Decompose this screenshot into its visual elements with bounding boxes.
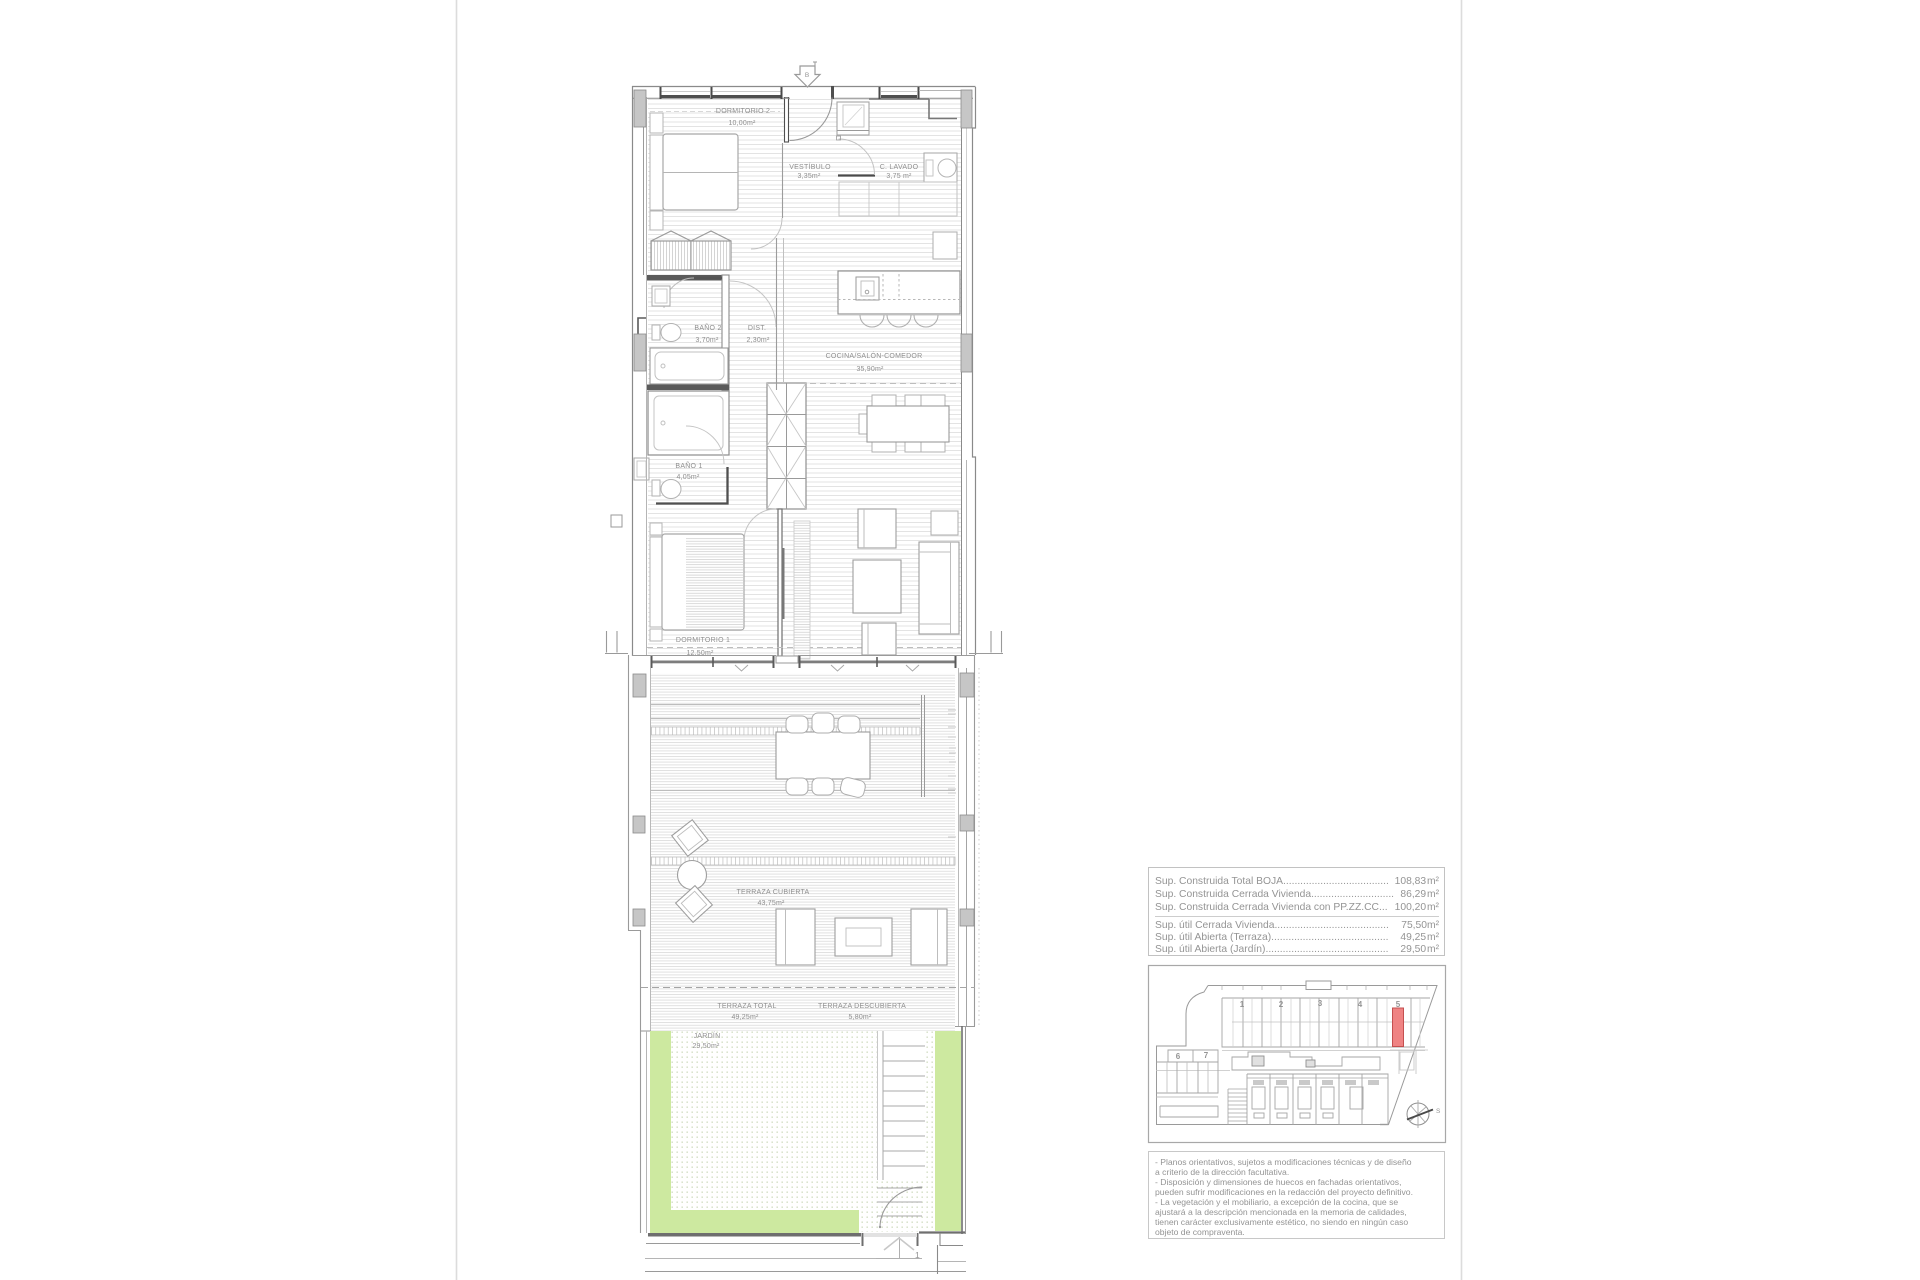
- svg-text:VESTÍBULO: VESTÍBULO: [789, 162, 831, 171]
- svg-text:objeto de compraventa.: objeto de compraventa.: [1155, 1227, 1245, 1237]
- svg-text:Sup. útil Cerrada Vivienda....: Sup. útil Cerrada Vivienda..............…: [1155, 920, 1389, 931]
- svg-text:C. LAVADO: C. LAVADO: [880, 164, 919, 171]
- svg-text:49,25m²: 49,25m²: [731, 1014, 759, 1021]
- svg-text:5,80m²: 5,80m²: [849, 1014, 872, 1021]
- svg-text:3: 3: [1318, 999, 1323, 1008]
- svg-text:2,30m²: 2,30m²: [747, 337, 770, 344]
- svg-text:DORMITORIO 2: DORMITORIO 2: [716, 108, 770, 115]
- svg-text:86,29 m²: 86,29 m²: [1400, 889, 1439, 900]
- svg-text:108,83 m²: 108,83 m²: [1395, 876, 1440, 887]
- svg-text:TERRAZA CUBIERTA: TERRAZA CUBIERTA: [737, 889, 810, 896]
- svg-text:B: B: [805, 72, 809, 79]
- svg-text:Sup. Construida Cerrada Vivien: Sup. Construida Cerrada Vivienda........…: [1155, 889, 1394, 900]
- svg-text:Sup. Construida Total BOJA....: Sup. Construida Total BOJA..............…: [1155, 876, 1389, 887]
- svg-text:Sup. útil Abierta (Jardín)....: Sup. útil Abierta (Jardín)..............…: [1155, 944, 1388, 955]
- svg-text:29,50 m²: 29,50 m²: [1400, 944, 1439, 955]
- svg-text:COCINA/SALÓN-COMEDOR: COCINA/SALÓN-COMEDOR: [826, 351, 923, 360]
- svg-text:4,05m²: 4,05m²: [677, 474, 700, 481]
- svg-text:BAÑO 2: BAÑO 2: [694, 323, 721, 332]
- svg-text:- Planos orientativos, sujetos: - Planos orientativos, sujetos a modific…: [1155, 1157, 1412, 1167]
- svg-text:29,50m²: 29,50m²: [692, 1043, 720, 1050]
- svg-text:Sup. Construida Cerrada Vivien: Sup. Construida Cerrada Vivienda con PP.…: [1155, 902, 1388, 913]
- svg-text:2: 2: [1279, 1000, 1284, 1009]
- svg-text:10,00m²: 10,00m²: [728, 120, 756, 127]
- svg-text:BAÑO 1: BAÑO 1: [675, 461, 702, 470]
- svg-text:43,75m²: 43,75m²: [757, 900, 785, 907]
- svg-text:3,75 m²: 3,75 m²: [886, 173, 912, 180]
- svg-text:pueden sufrir modificaciones e: pueden sufrir modificaciones en la redac…: [1155, 1187, 1413, 1197]
- svg-text:- La vegetación y el mobiliari: - La vegetación y el mobiliario, a excep…: [1155, 1197, 1398, 1207]
- svg-text:49,25 m²: 49,25 m²: [1400, 932, 1439, 943]
- svg-text:DIST.: DIST.: [748, 325, 766, 332]
- svg-text:1: 1: [1240, 1000, 1245, 1009]
- svg-text:ajustará a la descripción menc: ajustará a la descripción mencionada en …: [1155, 1207, 1407, 1217]
- svg-text:JARDÍN: JARDÍN: [694, 1031, 721, 1040]
- svg-text:35,90m²: 35,90m²: [856, 366, 884, 373]
- svg-text:- Disposición y dimensiones de: - Disposición y dimensiones de huecos en…: [1155, 1177, 1402, 1187]
- svg-text:S: S: [1436, 1108, 1441, 1115]
- svg-text:DORMITORIO 1: DORMITORIO 1: [676, 637, 730, 644]
- svg-text:3,35m²: 3,35m²: [798, 173, 821, 180]
- svg-text:Sup. útil Abierta (Terraza)...: Sup. útil Abierta (Terraza).............…: [1155, 932, 1388, 943]
- svg-text:a criterio de la dirección fac: a criterio de la dirección facultativa.: [1155, 1167, 1289, 1177]
- svg-text:75,50m²: 75,50m²: [1401, 920, 1439, 931]
- svg-text:100,20 m²: 100,20 m²: [1395, 902, 1440, 913]
- svg-text:6: 6: [1176, 1052, 1181, 1061]
- svg-text:tienen carácter exclusivamente: tienen carácter exclusivamente estético,…: [1155, 1217, 1408, 1227]
- svg-text:3,70m²: 3,70m²: [696, 337, 719, 344]
- svg-text:1: 1: [915, 1250, 920, 1260]
- svg-text:4: 4: [1358, 1000, 1363, 1009]
- svg-text:7: 7: [1204, 1051, 1209, 1060]
- svg-text:TERRAZA TOTAL: TERRAZA TOTAL: [717, 1003, 776, 1010]
- svg-text:TERRAZA DESCUBIERTA: TERRAZA DESCUBIERTA: [818, 1003, 906, 1010]
